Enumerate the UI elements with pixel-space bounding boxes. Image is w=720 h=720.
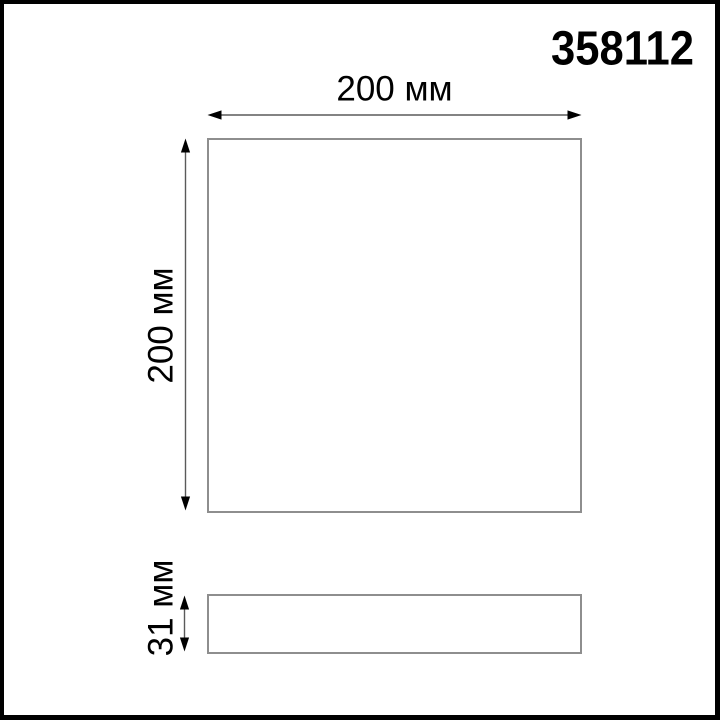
svg-text:358112: 358112 bbox=[551, 23, 694, 76]
svg-text:31 мм: 31 мм bbox=[142, 560, 181, 657]
svg-text:200 мм: 200 мм bbox=[142, 267, 181, 383]
svg-text:200 мм: 200 мм bbox=[336, 70, 452, 109]
